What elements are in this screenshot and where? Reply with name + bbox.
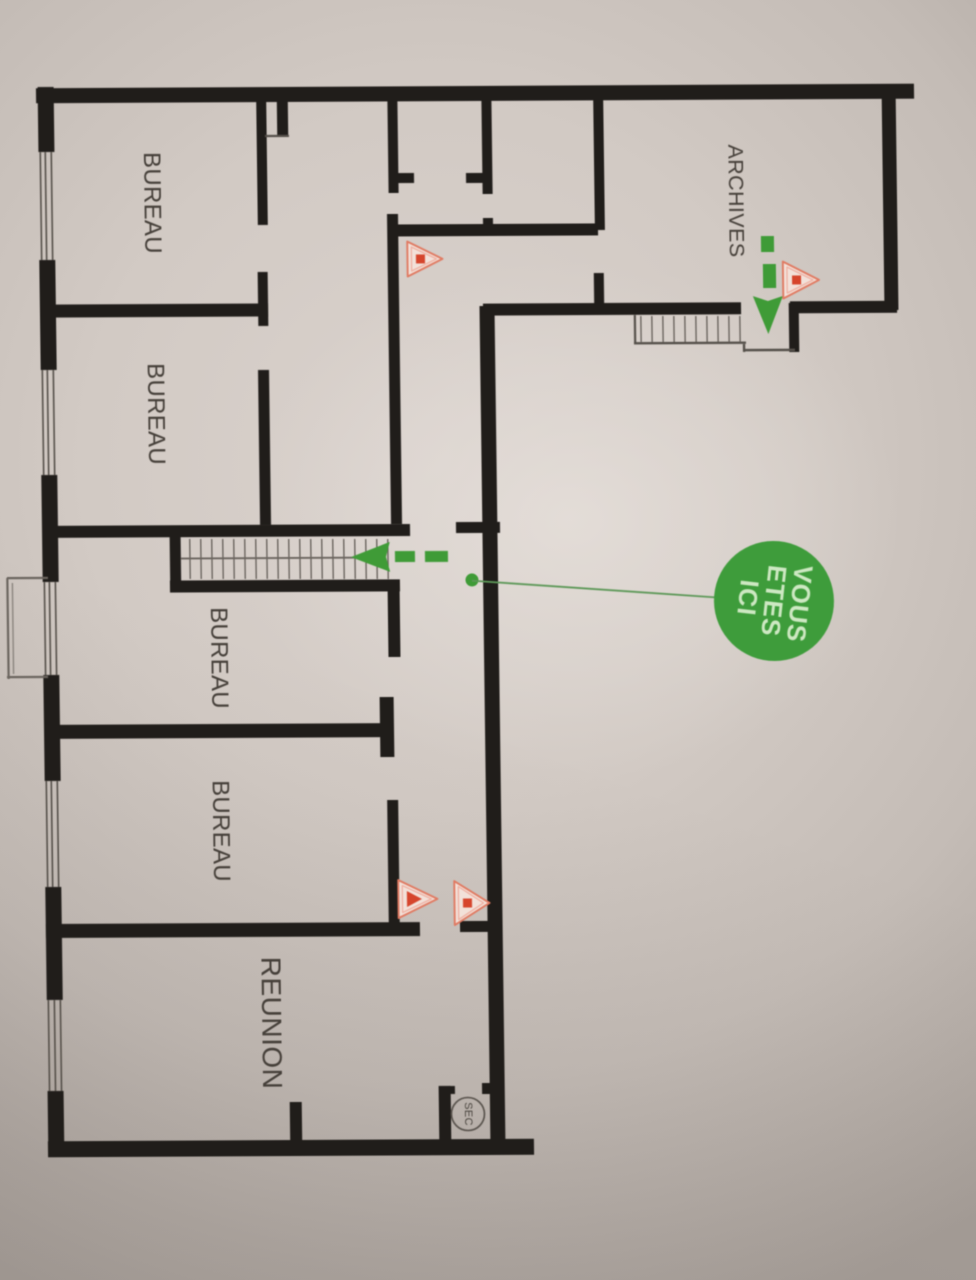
svg-text:SEC: SEC	[462, 1102, 474, 1126]
svg-text:BUREAU: BUREAU	[142, 363, 170, 465]
svg-text:REUNION: REUNION	[256, 957, 289, 1090]
svg-text:ICI: ICI	[731, 578, 765, 617]
svg-text:BUREAU: BUREAU	[205, 607, 233, 709]
svg-text:BUREAU: BUREAU	[138, 152, 166, 254]
svg-text:BUREAU: BUREAU	[207, 780, 235, 882]
svg-text:ARCHIVES: ARCHIVES	[723, 144, 748, 257]
